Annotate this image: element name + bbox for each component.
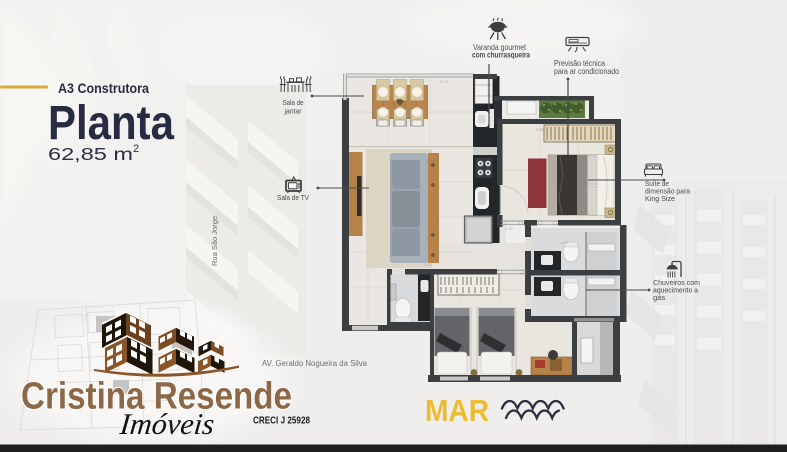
svg-text:jantar: jantar [284, 107, 302, 116]
svg-text:com churrasqueira: com churrasqueira [472, 51, 530, 60]
svg-text:Rua São Jorge: Rua São Jorge [210, 216, 219, 266]
svg-text:4.15: 4.15 [424, 262, 433, 267]
svg-text:Imóveis: Imóveis [117, 407, 216, 441]
svg-text:1.60: 1.60 [560, 240, 569, 245]
svg-text:3.96: 3.96 [536, 127, 545, 132]
svg-text:para ar condicionado: para ar condicionado [554, 67, 619, 76]
svg-text:2.79: 2.79 [440, 79, 449, 84]
svg-text:2: 2 [133, 143, 139, 155]
svg-text:62,85 m: 62,85 m [48, 144, 133, 164]
svg-text:2.60: 2.60 [505, 226, 514, 231]
svg-text:MAR: MAR [425, 393, 489, 428]
svg-text:1.98: 1.98 [455, 292, 464, 297]
svg-text:gás: gás [653, 293, 665, 302]
svg-text:Sala de TV: Sala de TV [277, 193, 309, 202]
svg-text:A3 Construtora: A3 Construtora [58, 81, 149, 96]
svg-text:Planta: Planta [48, 97, 174, 150]
svg-text:AV. Geraldo Nogueira da Silva: AV. Geraldo Nogueira da Silva [262, 359, 368, 368]
svg-text:King Size: King Size [645, 194, 675, 203]
